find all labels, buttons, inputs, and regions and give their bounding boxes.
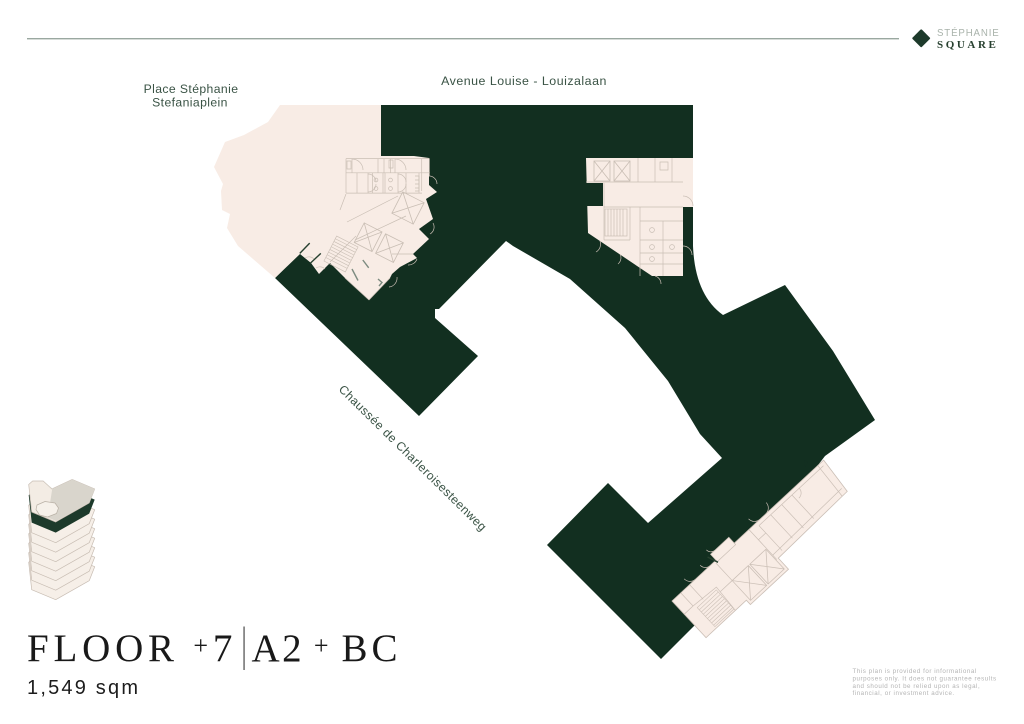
svg-text:Place Stéphanie: Place Stéphanie xyxy=(144,82,239,96)
svg-text:Avenue Louise - Louizalaan: Avenue Louise - Louizalaan xyxy=(441,74,607,88)
svg-text:financial, or investment advic: financial, or investment advice. xyxy=(853,690,955,697)
svg-text:This plan is provided for info: This plan is provided for informational xyxy=(853,668,977,675)
svg-text:SQUARE: SQUARE xyxy=(937,39,998,51)
svg-text:1,549 sqm: 1,549 sqm xyxy=(27,677,140,699)
svg-text:and should not be relied upon: and should not be relied upon as legal, xyxy=(853,683,981,690)
svg-text:STÉPHANIE: STÉPHANIE xyxy=(937,28,1000,39)
svg-text:Stefaniaplein: Stefaniaplein xyxy=(152,96,228,110)
svg-text:purposes only. It does not gua: purposes only. It does not guarantee res… xyxy=(853,675,997,682)
